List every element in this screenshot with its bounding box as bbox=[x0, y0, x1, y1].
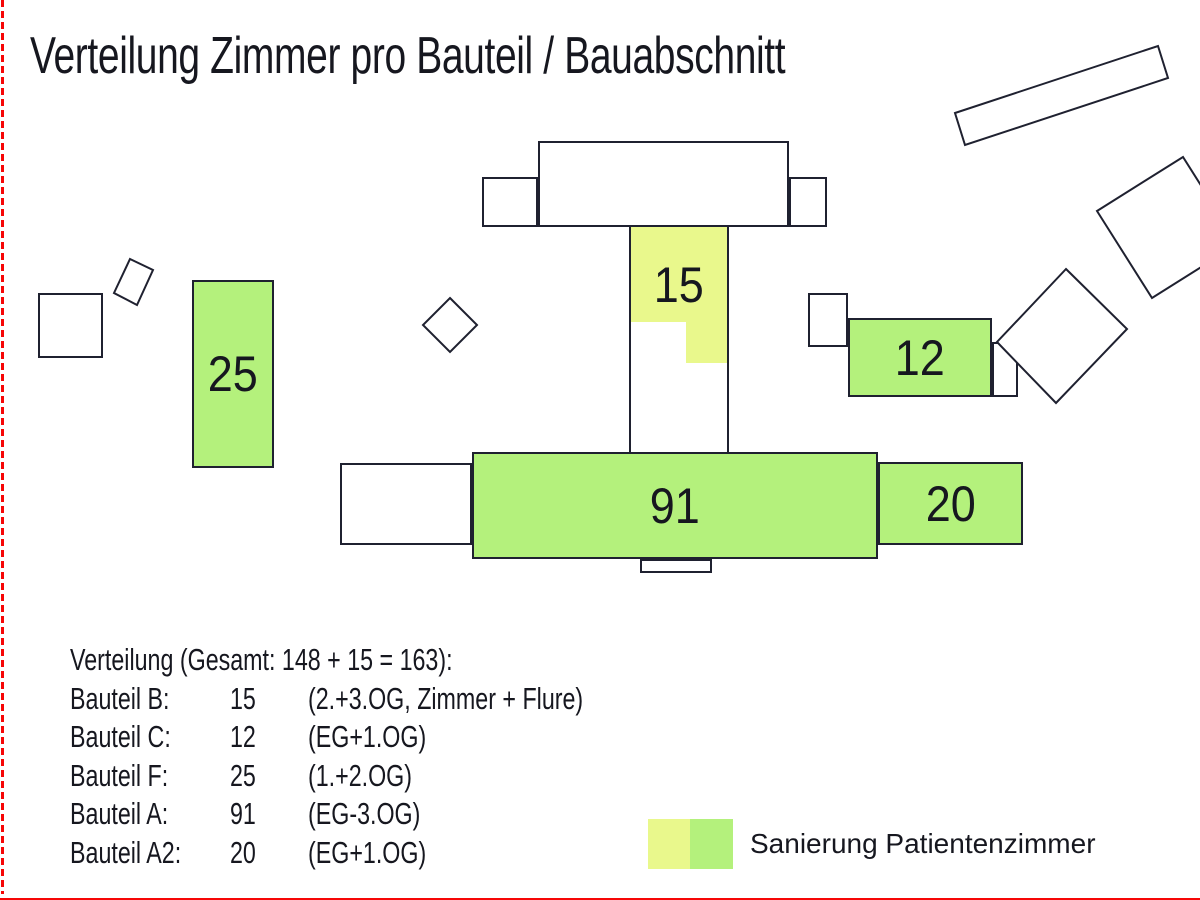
summary-row-value: 25 bbox=[230, 757, 256, 796]
summary-row: Bauteil C: 12 (EG+1.OG) bbox=[70, 718, 675, 757]
building-northeast-bar bbox=[955, 46, 1168, 145]
building-a-91: 91 bbox=[472, 452, 878, 559]
building-c-12: 12 bbox=[848, 318, 992, 397]
sanierung-area-b-lower bbox=[686, 322, 727, 363]
building-top-main bbox=[538, 141, 789, 227]
bauteil-f-count: 25 bbox=[194, 282, 272, 466]
summary-row-note: (2.+3.OG, Zimmer + Flure) bbox=[308, 680, 583, 719]
summary-row-label: Bauteil A: bbox=[70, 795, 168, 834]
summary-heading: Verteilung (Gesamt: 148 + 15 = 163): bbox=[70, 641, 453, 680]
summary-row-label: Bauteil F: bbox=[70, 757, 168, 796]
building-a2-20: 20 bbox=[878, 462, 1023, 545]
outbuilding-west-rotated-rect bbox=[114, 259, 153, 305]
outbuilding-west-square bbox=[38, 293, 103, 358]
summary-heading-line: Verteilung (Gesamt: 148 + 15 = 163): bbox=[70, 641, 675, 680]
building-a-south-notch bbox=[640, 559, 712, 573]
building-top-west-annex bbox=[482, 177, 538, 227]
bauteil-b-count: 15 bbox=[631, 249, 727, 321]
summary-row-note: (EG-3.OG) bbox=[308, 795, 420, 834]
building-b-corridor: 15 bbox=[629, 227, 729, 452]
summary-row-value: 91 bbox=[230, 795, 256, 834]
summary-row-label: Bauteil A2: bbox=[70, 834, 181, 873]
legend-label: Sanierung Patientenzimmer bbox=[750, 819, 1096, 869]
bauteil-f-count-text: 25 bbox=[208, 345, 258, 403]
summary-row-note: (EG+1.OG) bbox=[308, 718, 426, 757]
building-northeast-square bbox=[1097, 157, 1200, 298]
distribution-summary: Verteilung (Gesamt: 148 + 15 = 163): Bau… bbox=[70, 641, 675, 872]
summary-row: Bauteil B: 15 (2.+3.OG, Zimmer + Flure) bbox=[70, 680, 675, 719]
bauteil-a-count-text: 91 bbox=[650, 477, 700, 535]
summary-row-value: 15 bbox=[230, 680, 256, 719]
bauteil-a2-count-text: 20 bbox=[925, 475, 975, 533]
building-f-25: 25 bbox=[192, 280, 274, 468]
building-c-east-annex bbox=[992, 342, 1018, 397]
legend-swatch-partial-icon bbox=[648, 819, 690, 869]
outbuilding-center-diamond bbox=[423, 298, 477, 352]
building-c-west-annex bbox=[808, 293, 848, 347]
summary-row: Bauteil F: 25 (1.+2.OG) bbox=[70, 757, 675, 796]
bauteil-a2-count: 20 bbox=[880, 464, 1021, 543]
summary-row-value: 12 bbox=[230, 718, 256, 757]
summary-row-note: (EG+1.OG) bbox=[308, 834, 426, 873]
building-a-west-annex bbox=[340, 463, 472, 545]
legend-swatch-full-icon bbox=[690, 819, 733, 869]
summary-row-value: 20 bbox=[230, 834, 256, 873]
summary-row-label: Bauteil C: bbox=[70, 718, 171, 757]
summary-row-label: Bauteil B: bbox=[70, 680, 170, 719]
bauteil-a-count: 91 bbox=[474, 454, 876, 557]
building-top-east-annex bbox=[789, 177, 827, 227]
bauteil-b-count-text: 15 bbox=[654, 256, 704, 314]
summary-row: Bauteil A: 91 (EG-3.OG) bbox=[70, 795, 675, 834]
bauteil-c-count: 12 bbox=[850, 320, 990, 395]
summary-row-note: (1.+2.OG) bbox=[308, 757, 412, 796]
summary-row: Bauteil A2: 20 (EG+1.OG) bbox=[70, 834, 675, 873]
page: Verteilung Zimmer pro Bauteil / Bauabsch… bbox=[0, 0, 1200, 900]
bauteil-c-count-text: 12 bbox=[895, 329, 945, 387]
